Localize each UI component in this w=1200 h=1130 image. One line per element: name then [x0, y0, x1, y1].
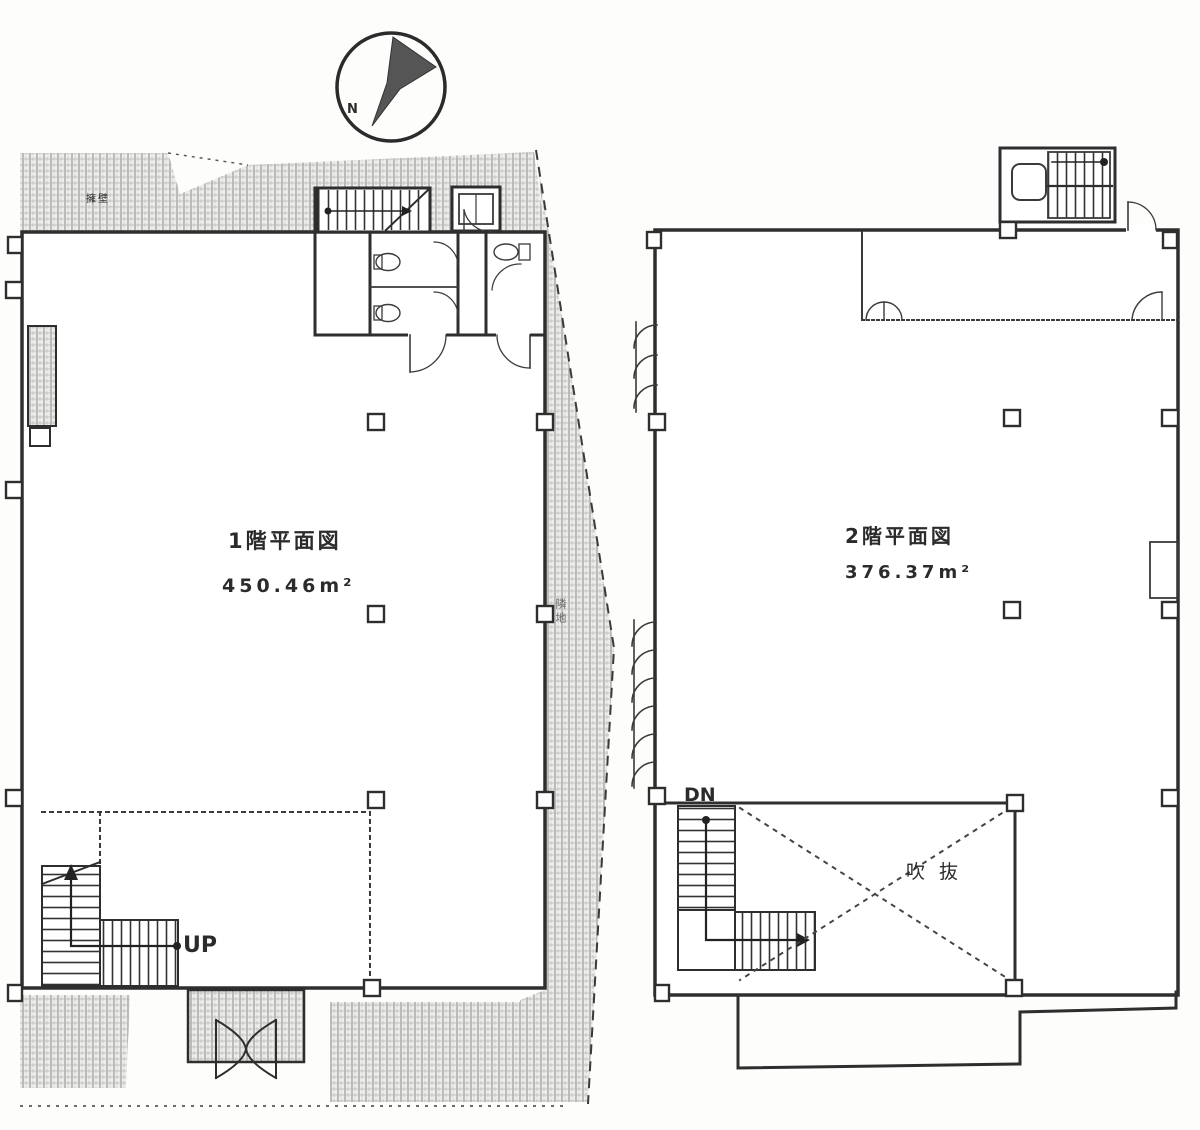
floor2-top-door [1126, 202, 1156, 235]
up-label: UP [183, 933, 217, 958]
floorplan-drawing: N 1階平面図 450.46m² 2階平面図 376.37m² UP DN 吹抜… [0, 0, 1200, 1130]
floor1-area-label: 450.46m² [222, 575, 355, 597]
floor2-top-exterior-stair [1000, 148, 1115, 222]
floor1-title-label: 1階平面図 [228, 529, 342, 553]
floor2-eaves-outline [738, 992, 1176, 1068]
site-label-top-left: 擁壁 [86, 192, 110, 205]
site-label-right: 隣地 [552, 598, 568, 626]
north-arrow-icon [372, 37, 436, 126]
site-hatch-bottom-left [20, 995, 130, 1088]
dn-label: DN [684, 784, 716, 806]
floor1-top-porch [452, 187, 500, 231]
north-label: N [347, 102, 358, 117]
floor1-entrance [188, 990, 304, 1078]
void-label: 吹抜 [906, 861, 972, 883]
floor2-area-label: 376.37m² [845, 562, 973, 583]
floor1-plan [6, 187, 553, 1078]
floor2-plan [632, 148, 1178, 1068]
floorplan-scan-page: N 1階平面図 450.46m² 2階平面図 376.37m² UP DN 吹抜… [0, 0, 1200, 1130]
floor2-louver-strip-lower [632, 620, 656, 788]
compass: N [337, 33, 445, 141]
floor2-title-label: 2階平面図 [845, 524, 954, 548]
site-boundary-dotted-top [168, 153, 248, 165]
site-hatch-bottom [330, 1002, 520, 1102]
floor1-top-exterior-stair [318, 188, 430, 232]
